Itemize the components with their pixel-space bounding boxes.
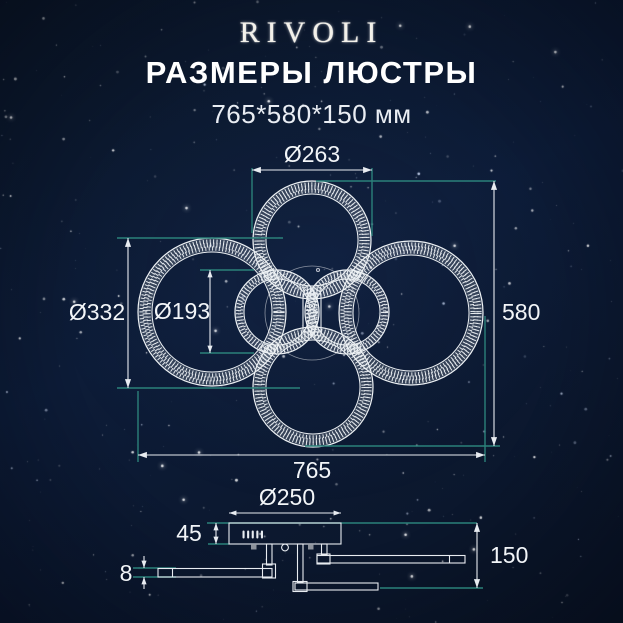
canopy-hook xyxy=(282,544,289,551)
technical-drawing: Ø263 580 765 Ø332 Ø193 xyxy=(0,0,623,623)
label-inner-ring-diameter: Ø193 xyxy=(154,298,210,324)
label-top-ring-diameter: Ø263 xyxy=(284,141,340,167)
ring-bar-right xyxy=(317,556,465,564)
rod-left xyxy=(267,544,273,565)
label-ring-thickness: 8 xyxy=(120,560,133,586)
label-left-ring-diameter: Ø332 xyxy=(69,299,125,325)
canopy-fitting-left xyxy=(251,544,257,550)
chandelier-side-view: Ø250 45 150 8 xyxy=(120,484,529,592)
ring-bar-left xyxy=(158,569,272,578)
page-title: РАЗМЕРЫ ЛЮСТРЫ xyxy=(0,55,623,91)
brand-logo: RIVOLI xyxy=(0,16,623,50)
rod-middle xyxy=(298,544,304,582)
top-ring xyxy=(253,181,371,299)
label-overall-width: 765 xyxy=(293,457,331,483)
label-overall-height: 580 xyxy=(502,299,540,325)
canopy-vent-slots xyxy=(243,531,264,539)
rod-right xyxy=(322,544,328,555)
bottom-ring xyxy=(253,327,373,447)
bracket-left xyxy=(263,564,276,578)
label-total-height: 150 xyxy=(490,542,528,568)
canopy-outline xyxy=(229,523,341,544)
label-canopy-diameter: Ø250 xyxy=(259,484,315,510)
canopy-fitting-right xyxy=(308,544,314,550)
label-canopy-height: 45 xyxy=(176,520,202,546)
product-dimension-poster: RIVOLI РАЗМЕРЫ ЛЮСТРЫ 765*580*150 мм xyxy=(0,0,623,623)
dimensions-subtitle: 765*580*150 мм xyxy=(0,99,623,130)
